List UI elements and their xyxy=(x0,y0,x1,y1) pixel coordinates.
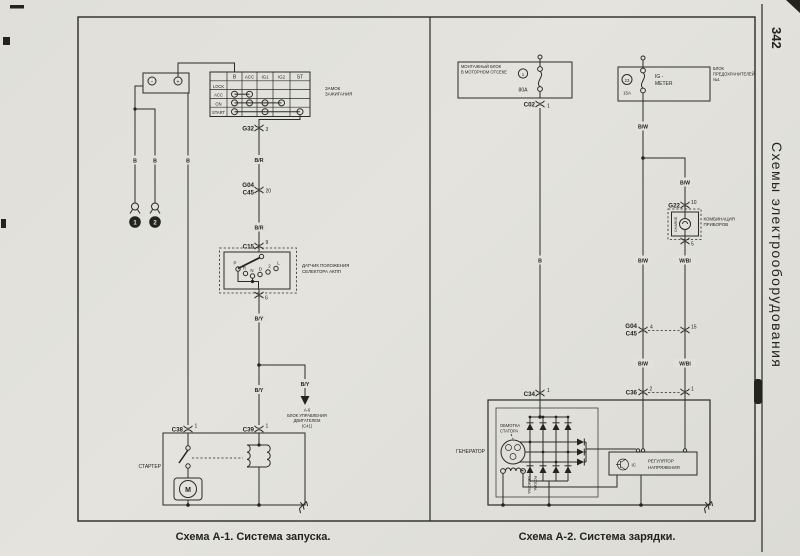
svg-text:(C41): (C41) xyxy=(302,423,313,428)
svg-text:C45: C45 xyxy=(626,331,638,338)
pin-label: 6 xyxy=(265,296,268,302)
wire-label: B B B xyxy=(131,156,192,165)
wire-label: B xyxy=(536,256,544,265)
col-ig2: IG2 xyxy=(278,74,286,79)
sensor-label-1: ДАТЧИК ПОЛОЖЕНИЯ xyxy=(302,263,349,268)
generator-label: ГЕНЕРАТОР xyxy=(456,449,486,455)
regulator-label-2: НАПРЯЖЕНИЯ xyxy=(648,465,680,470)
svg-text:C45: C45 xyxy=(243,190,255,197)
fusebox-no1: 23 15A IG - METER БЛОК ПРЕДОХРАНИТЕЛЕЙ №… xyxy=(618,56,755,101)
battery-plus: + xyxy=(177,79,180,85)
stator-winding xyxy=(501,440,525,464)
chapter-title: Схемы электрооборудования xyxy=(769,142,785,368)
fb-label-2: ПРЕДОХРАНИТЕЛЕЙ xyxy=(713,71,755,76)
row-acc: ACC xyxy=(214,93,223,98)
svg-text:B/W: B/W xyxy=(638,259,648,265)
col-st: ST xyxy=(297,74,303,80)
svg-text:C34: C34 xyxy=(524,391,536,398)
at-selector-sensor: P R N D 2 L ДАТЧИК ПОЛОЖЕНИЯ СЕЛЕКТОРА А… xyxy=(220,248,350,293)
svg-text:A-6: A-6 xyxy=(304,408,311,413)
svg-text:B/W: B/W xyxy=(680,181,690,187)
wire-label: B/R xyxy=(250,155,268,164)
fuse-15a xyxy=(641,68,646,93)
svg-text:W/Bl: W/Bl xyxy=(679,259,691,265)
connector-g04-c45: G04 C45 4 15 xyxy=(625,323,696,338)
pos-r: R xyxy=(243,266,246,271)
schematic-a1: − + B B B 1 2 xyxy=(129,63,352,513)
pin-label: 1 xyxy=(266,424,269,430)
fuse-number: 23 xyxy=(625,78,630,83)
ground-symbol xyxy=(295,499,309,513)
page-number: 342 xyxy=(769,27,784,49)
pos-p: P xyxy=(234,261,237,266)
col-acc: ACC xyxy=(245,74,254,79)
svg-text:БЛОК УПРАВЛЕНИЯ: БЛОК УПРАВЛЕНИЯ xyxy=(287,413,327,418)
pos-n: N xyxy=(250,268,253,273)
pos-l: L xyxy=(277,261,280,266)
pin-label: 1 xyxy=(195,424,198,430)
ground-symbol-1: 1 xyxy=(129,203,141,228)
row-on: ON xyxy=(215,101,221,106)
svg-text:B: B xyxy=(153,159,157,165)
svg-text:B/W: B/W xyxy=(638,125,648,131)
svg-text:B: B xyxy=(186,159,190,165)
ground-symbol xyxy=(700,499,714,513)
svg-text:G04: G04 xyxy=(625,323,637,330)
engine-bay-fusebox: МОНТАЖНЫЙ БЛОК В МОТОРНОМ ОТСЕКЕ 1 80A xyxy=(458,55,572,98)
pin-label: 3 xyxy=(266,127,269,133)
wire-label: B/R xyxy=(250,223,268,232)
fuse-number: 1 xyxy=(522,72,525,77)
battery-minus: − xyxy=(151,79,154,85)
pin-label: 1 xyxy=(547,388,550,394)
efb-label-1: МОНТАЖНЫЙ БЛОК xyxy=(461,64,502,69)
pos-d: D xyxy=(259,267,262,272)
pin-label: 5 xyxy=(691,242,694,248)
pin-label: 15 xyxy=(691,325,697,331)
stator-label-1: ОБМОТКА xyxy=(500,423,520,428)
svg-text:C36: C36 xyxy=(626,390,638,397)
pin-label: 4 xyxy=(650,325,653,331)
schematic-a2: МОНТАЖНЫЙ БЛОК В МОТОРНОМ ОТСЕКЕ 1 80A C… xyxy=(456,55,755,513)
svg-text:G04: G04 xyxy=(242,182,254,189)
pin-label: 20 xyxy=(266,189,272,195)
connector-g22: G22 10 xyxy=(668,200,696,210)
connector-c15: C15 9 xyxy=(243,240,269,251)
connector-c34: C34 1 xyxy=(524,388,550,398)
circuit-name-1: IG - xyxy=(655,74,664,80)
charge-lamp xyxy=(680,219,691,230)
rotor-label-2: РОТОРА xyxy=(533,476,537,491)
ignition-label-2: ЗАЖИГАНИЯ xyxy=(325,92,352,97)
svg-text:B: B xyxy=(538,259,542,265)
regulator-label-1: РЕГУЛЯТОР xyxy=(648,459,674,464)
charge-lamp-label: CHARGE xyxy=(674,216,678,232)
caption-a1: Схема А-1. Система запуска. xyxy=(176,531,331,543)
diode-bridge xyxy=(527,423,572,473)
svg-text:B: B xyxy=(133,159,137,165)
ecu-arrow: A-6 БЛОК УПРАВЛЕНИЯ ДВИГАТЕЛЕМ (C41) xyxy=(287,396,327,428)
svg-text:B/W: B/W xyxy=(638,362,648,368)
ic-label: IC xyxy=(632,463,636,468)
ground-symbol-2: 2 xyxy=(149,203,161,228)
fuse-80a xyxy=(538,67,543,92)
scanned-manual-page: 342 Схемы электрооборудования − + B B B xyxy=(0,0,800,556)
fb-label-3: №1 xyxy=(713,77,720,82)
cluster-label-1: КОМБИНАЦИЯ xyxy=(704,217,735,222)
svg-text:ДВИГАТЕЛЕМ: ДВИГАТЕЛЕМ xyxy=(294,418,321,423)
rotor-label-1: ОБМОТКА xyxy=(527,476,531,494)
efb-label-2: В МОТОРНОМ ОТСЕКЕ xyxy=(461,69,507,74)
circuit-name-2: METER xyxy=(655,81,673,87)
svg-text:M: M xyxy=(185,487,191,494)
sidebar: 342 Схемы электрооборудования xyxy=(769,27,785,368)
battery: − + xyxy=(143,73,189,93)
pin-label: 1 xyxy=(691,387,694,393)
connector-c36: C36 2 1 xyxy=(626,387,694,397)
starter-label: СТАРТЕР xyxy=(138,464,161,470)
pin-label: 1 xyxy=(547,104,550,110)
stator-label-2: СТАТОРА xyxy=(500,428,519,433)
svg-text:C39: C39 xyxy=(243,427,255,434)
caption-a2: Схема А-2. Система зарядки. xyxy=(519,531,676,543)
connector-c38: C38 1 xyxy=(172,424,198,434)
svg-text:C02: C02 xyxy=(524,102,536,109)
col-ig1: IG1 xyxy=(261,74,269,79)
row-start: START xyxy=(212,110,226,115)
fb-label-1: БЛОК xyxy=(713,66,725,71)
charge-lamp-cluster: CHARGE КОМБИНАЦИЯ ПРИБОРОВ xyxy=(668,209,735,240)
svg-text:B/Y: B/Y xyxy=(301,382,310,388)
scan-artifacts xyxy=(1,0,800,404)
pin-label: 9 xyxy=(266,240,269,246)
wire-label: B/Y B/Y xyxy=(250,379,314,394)
cluster-label-2: ПРИБОРОВ xyxy=(704,222,729,227)
connector-c02: C02 1 xyxy=(524,101,550,110)
ignition-switch-table: B ACC IG1 IG2 ST LOCK ACC ON START ЗАМОК… xyxy=(210,72,352,117)
wire-label: B/Y xyxy=(250,314,268,323)
starter-motor: M xyxy=(174,478,202,500)
svg-text:G22: G22 xyxy=(668,203,680,210)
svg-text:W/Bl: W/Bl xyxy=(679,362,691,368)
svg-text:C38: C38 xyxy=(172,427,184,434)
svg-text:B/R: B/R xyxy=(255,226,264,232)
connector-c39: C39 1 xyxy=(243,424,269,434)
svg-text:B/R: B/R xyxy=(255,158,264,164)
svg-text:B/Y: B/Y xyxy=(255,317,264,323)
ignition-label-1: ЗАМОК xyxy=(325,86,341,91)
svg-text:C15: C15 xyxy=(243,244,255,251)
row-lock: LOCK xyxy=(213,84,224,89)
fuse-rating: 80A xyxy=(519,88,529,94)
pin-label: 2 xyxy=(650,387,653,393)
generator: ГЕНЕРАТОР ОБМОТКА СТАТОРА xyxy=(456,400,714,513)
col-b: B xyxy=(233,74,237,80)
svg-text:B/Y: B/Y xyxy=(255,388,264,394)
starter-unit: СТАРТЕР M xyxy=(138,433,309,513)
fuse-rating: 15A xyxy=(623,91,631,96)
connector-g04-c45: G04 C45 20 xyxy=(242,182,271,197)
connector-g32: G32 3 xyxy=(242,125,268,133)
pin-label: 10 xyxy=(691,200,697,206)
sensor-label-2: СЕЛЕКТОРА АКПП xyxy=(302,269,341,274)
pos-2: 2 xyxy=(268,264,271,269)
svg-text:G32: G32 xyxy=(242,126,254,133)
voltage-regulator: IC РЕГУЛЯТОР НАПРЯЖЕНИЯ xyxy=(609,449,697,505)
rotor-winding: ОБМОТКА РОТОРА xyxy=(501,468,617,505)
